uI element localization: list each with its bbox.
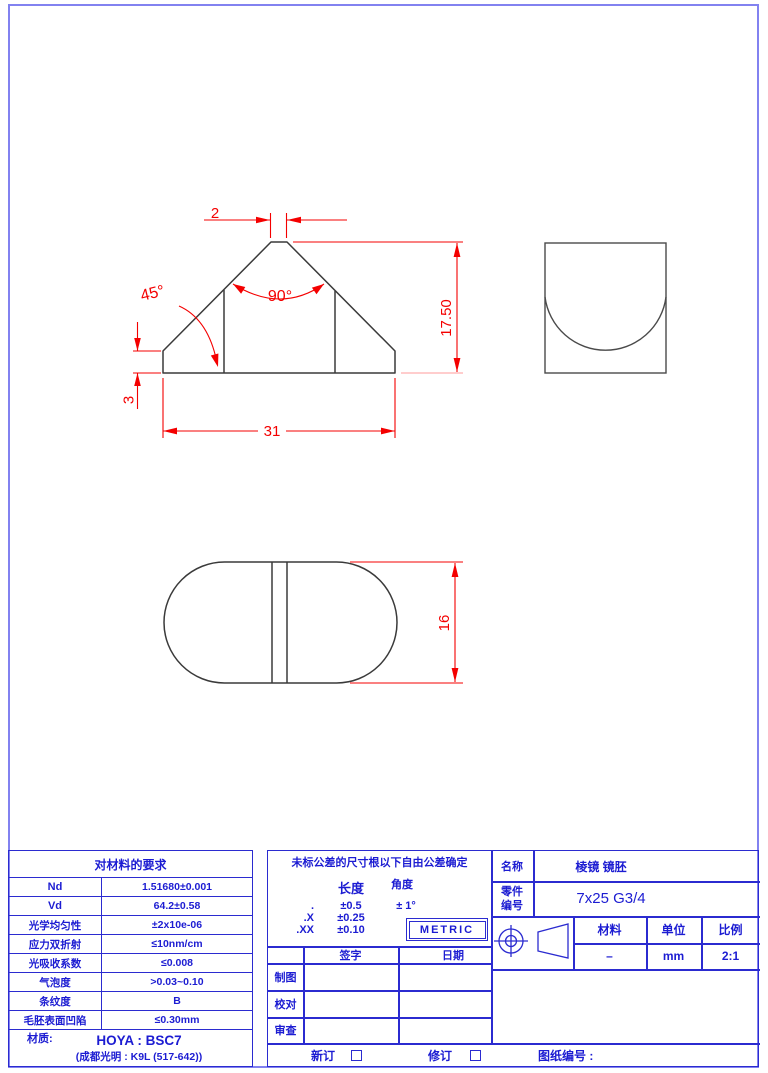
date-header: 日期 <box>413 946 493 963</box>
third-angle-projection-icon <box>491 916 573 969</box>
table-row: 光吸收系数 ≤0.008 <box>9 954 252 973</box>
dim-45-leader <box>179 306 216 356</box>
tolerance-precision: .XX <box>284 923 314 936</box>
title-block: 未标公差的尺寸根以下自由公差确定 长度 角度 . ±0.5 ± 1° .X ±0… <box>267 850 759 1067</box>
table-row: Nd 1.51680±0.001 <box>9 878 252 897</box>
name-value: 棱镜 镜胚 <box>533 851 669 881</box>
side-view-outline <box>545 243 666 373</box>
dimension-arrowheads <box>134 217 460 682</box>
part-number-value: 7x25 G3/4 <box>533 881 689 916</box>
material-col-value: – <box>573 943 646 969</box>
drawing-number-label: 图纸编号 : <box>538 1043 678 1068</box>
table-row: 光学均匀性 ±2x10e-06 <box>9 916 252 935</box>
signature-header: 签字 <box>303 946 398 963</box>
spec-label: 应力双折射 <box>9 935 102 953</box>
scale-col-value: 2:1 <box>701 943 760 969</box>
side-view-arc <box>545 297 666 350</box>
metric-stamp-label: METRIC <box>420 924 474 936</box>
sign-row-checked: 校对 <box>268 990 303 1017</box>
spec-label: 光吸收系数 <box>9 954 102 972</box>
dim-1750-label: 17.50 <box>438 299 455 337</box>
spec-label: Nd <box>9 878 102 896</box>
drawing-canvas: 2 17.50 45° 90° 3 31 16 <box>0 0 768 830</box>
spec-value: ≤10nm/cm <box>102 935 252 953</box>
spec-value: B <box>102 992 252 1010</box>
sign-row-reviewed: 审查 <box>268 1017 303 1043</box>
divider <box>398 946 400 1043</box>
metric-stamp-inner-border: METRIC <box>409 921 486 939</box>
divider <box>491 969 760 971</box>
material-brand-note: (成都光明 : K9L (517-642)) <box>39 1049 239 1063</box>
spec-value: ≤0.30mm <box>102 1011 252 1029</box>
table-row: 气泡度 >0.03~0.10 <box>9 973 252 992</box>
spec-label: 光学均匀性 <box>9 916 102 934</box>
unit-col-label: 单位 <box>646 916 701 943</box>
spec-value: ±2x10e-06 <box>102 916 252 934</box>
dim-45-label: 45° <box>139 283 167 305</box>
plan-view-outline <box>164 562 397 683</box>
material-brand-value: HOYA : BSC7 <box>49 1033 229 1048</box>
material-requirements-table: 对材料的要求 Nd 1.51680±0.001 Vd 64.2±0.58 光学均… <box>8 850 253 1067</box>
tolerance-col-angle: 角度 <box>380 877 424 891</box>
table-row: 应力双折射 ≤10nm/cm <box>9 935 252 954</box>
dim-16-label: 16 <box>436 615 453 632</box>
spec-label: 条纹度 <box>9 992 102 1010</box>
name-label: 名称 <box>491 851 533 881</box>
new-order-checkbox <box>351 1050 362 1061</box>
sign-row-drawn: 制图 <box>268 963 303 990</box>
dim-2-label: 2 <box>211 205 219 222</box>
table-row: 条纹度 B <box>9 992 252 1011</box>
spec-label: 毛胚表面凹陷 <box>9 1011 102 1029</box>
part-label-line1: 零件 <box>501 885 523 899</box>
drawing-sheet: 2 17.50 45° 90° 3 31 16 对材料的要求 Nd 1.5168… <box>0 0 768 1073</box>
spec-label: 气泡度 <box>9 973 102 991</box>
tolerance-note: 未标公差的尺寸根以下自由公差确定 <box>268 853 491 871</box>
material-table-title: 对材料的要求 <box>9 851 252 878</box>
scale-col-label: 比例 <box>701 916 760 943</box>
table-row: 毛胚表面凹陷 ≤0.30mm <box>9 1011 252 1030</box>
tolerance-length-value: ±0.10 <box>326 923 376 936</box>
material-col-label: 材料 <box>573 916 646 943</box>
part-label-line2: 编号 <box>501 899 523 913</box>
unit-col-value: mm <box>646 943 701 969</box>
dim-90-label: 90° <box>268 288 292 305</box>
new-order-label: 新订 <box>306 1043 340 1068</box>
revision-label: 修订 <box>423 1043 457 1068</box>
tolerance-col-length: 长度 <box>326 879 376 895</box>
revision-checkbox <box>470 1050 481 1061</box>
tolerance-angle-value: ± 1° <box>380 899 432 912</box>
table-row: Vd 64.2±0.58 <box>9 897 252 916</box>
spec-value: ≤0.008 <box>102 954 252 972</box>
divider <box>268 1043 760 1045</box>
part-number-label: 零件 编号 <box>491 881 533 916</box>
dim-3-label: 3 <box>121 396 138 404</box>
spec-value: 64.2±0.58 <box>102 897 252 915</box>
spec-value: 1.51680±0.001 <box>102 878 252 896</box>
spec-value: >0.03~0.10 <box>102 973 252 991</box>
metric-stamp-box: METRIC <box>406 918 488 941</box>
front-view-outline <box>163 242 395 373</box>
dim-31-label: 31 <box>264 423 281 440</box>
spec-label: Vd <box>9 897 102 915</box>
